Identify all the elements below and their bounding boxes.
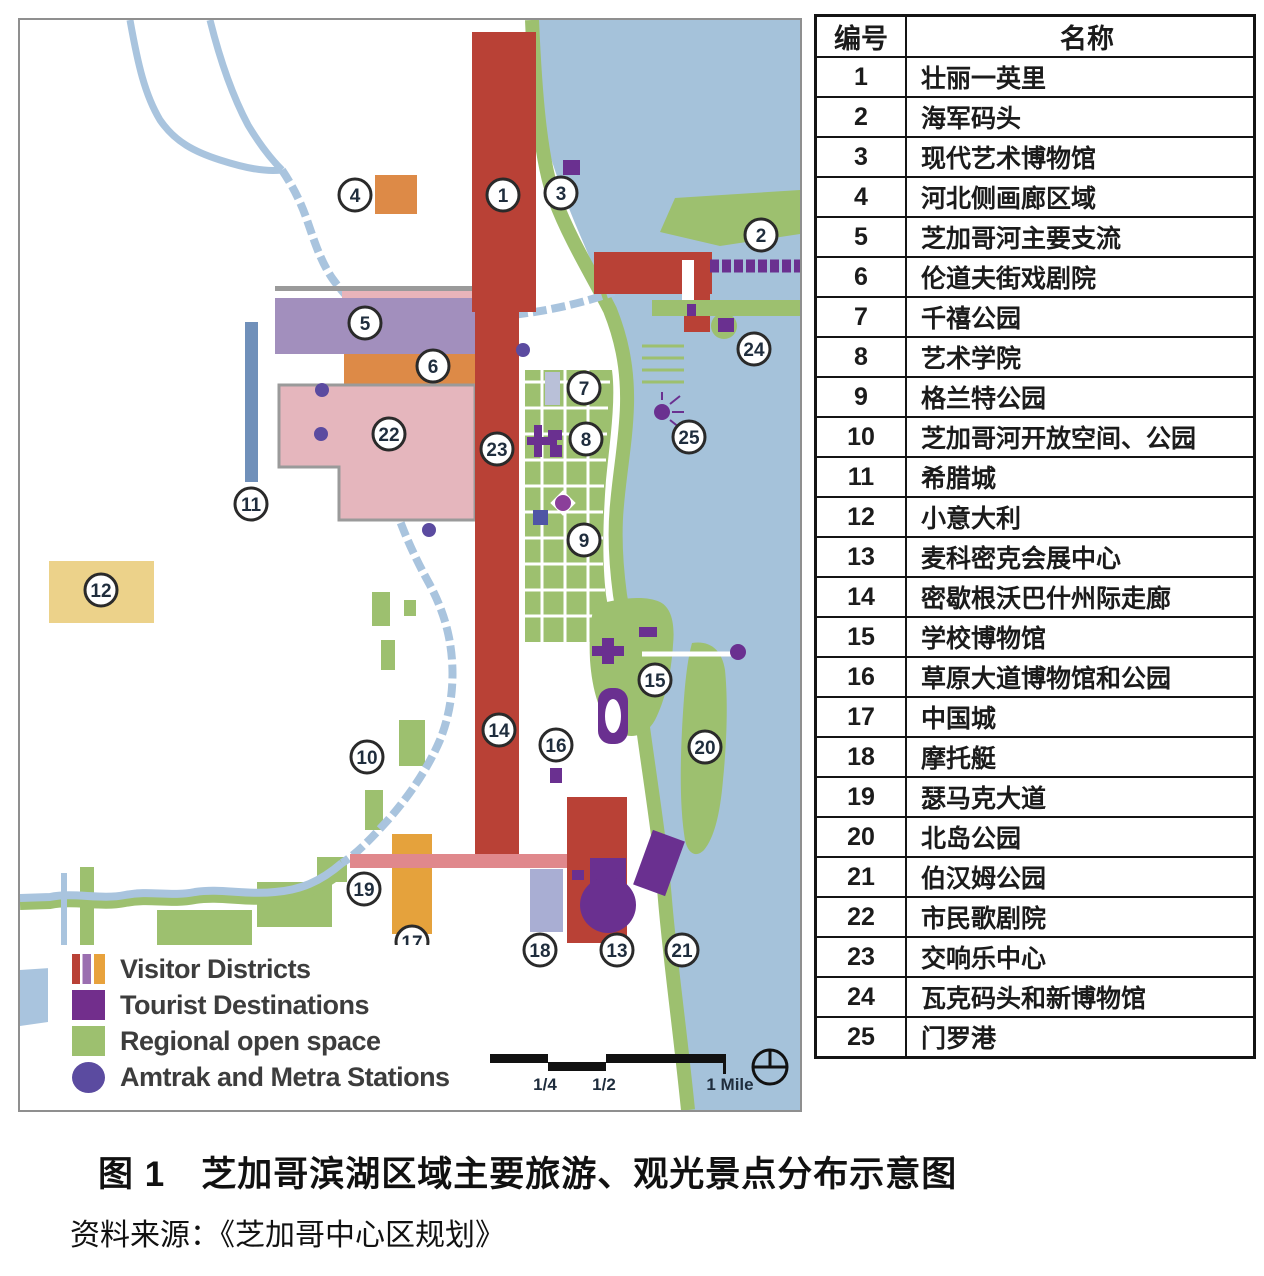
row-number-cell: 21 [816,857,907,897]
map-marker-2: 2 [745,219,777,251]
table-row: 2海军码头 [816,97,1255,137]
svg-text:11: 11 [241,495,262,516]
district-6-orange [344,354,475,385]
header-number: 编号 [816,16,907,58]
table-row: 13麦科密克会展中心 [816,537,1255,577]
pritzker-lavender [545,372,560,405]
table-row: 17中国城 [816,697,1255,737]
row-number-cell: 19 [816,777,907,817]
mca-square [563,160,580,175]
map-marker-25: 25 [673,421,705,453]
row-name-cell: 伦道夫街戏剧院 [906,257,1255,297]
map-marker-20: 20 [689,731,721,763]
table-row: 8艺术学院 [816,337,1255,377]
legend-row: Visitor Districts [72,951,480,987]
svg-text:9: 9 [579,531,590,552]
legend-row: Amtrak and Metra Stations [72,1059,480,1095]
table-header-row: 编号 名称 [816,16,1255,58]
table-row: 20北岛公园 [816,817,1255,857]
row-number-cell: 25 [816,1017,907,1058]
row-number-cell: 8 [816,337,907,377]
district-5-pink-strip [342,291,479,298]
svg-text:21: 21 [671,941,693,962]
table-row: 14密歇根沃巴什州际走廊 [816,577,1255,617]
svg-text:23: 23 [486,440,507,461]
table-row: 6伦道夫街戏剧院 [816,257,1255,297]
row-name-cell: 伯汉姆公园 [906,857,1255,897]
table-row: 23交响乐中心 [816,937,1255,977]
svg-text:20: 20 [694,738,715,759]
row-number-cell: 17 [816,697,907,737]
map-marker-16: 16 [540,729,572,761]
legend-swatch-purple [72,990,105,1020]
map-marker-19: 19 [348,873,380,905]
map-marker-6: 6 [417,350,449,382]
map-marker-1: 1 [487,179,519,211]
row-number-cell: 13 [816,537,907,577]
svg-text:19: 19 [353,880,374,901]
map-marker-14: 14 [483,714,515,746]
row-name-cell: 交响乐中心 [906,937,1255,977]
scanned-figure-page: 1234567891011121314151617181920212223242… [0,0,1264,1276]
row-name-cell: 中国城 [906,697,1255,737]
station-square [533,510,548,525]
map-marker-3: 3 [545,177,577,209]
row-number-cell: 18 [816,737,907,777]
row-number-cell: 23 [816,937,907,977]
canal-bar [61,873,67,947]
map-marker-8: 8 [570,423,602,455]
row-name-cell: 河北侧画廊区域 [906,177,1255,217]
table-row: 19瑟马克大道 [816,777,1255,817]
table-row: 7千禧公园 [816,297,1255,337]
svg-text:1: 1 [498,186,509,207]
greektown-bar [245,322,258,482]
svg-text:14: 14 [488,721,510,742]
svg-text:6: 6 [428,357,439,378]
michigan-wabash-red [475,310,519,854]
row-number-cell: 22 [816,897,907,937]
row-number-cell: 3 [816,137,907,177]
legend-label: Regional open space [120,1026,381,1057]
wacker-museum [718,318,734,332]
row-number-cell: 4 [816,177,907,217]
row-name-cell: 北岛公园 [906,817,1255,857]
figure-source: 资料来源：《芝加哥中心区规划》 [70,1210,505,1254]
row-number-cell: 7 [816,297,907,337]
planetarium-dot [730,644,746,660]
table-body: 1壮丽一英里2海军码头3现代艺术博物馆4河北侧画廊区域5芝加哥河主要支流6伦道夫… [816,57,1255,1058]
table-row: 15学校博物馆 [816,617,1255,657]
magnificent-mile-red [472,32,536,312]
svg-text:16: 16 [545,736,566,757]
prairie-ave-square [550,768,562,783]
svg-text:25: 25 [678,428,700,449]
cermak-road-salmon [350,854,569,868]
district-5-border [275,286,479,291]
row-number-cell: 15 [816,617,907,657]
map-marker-21: 21 [666,934,698,966]
map-marker-9: 9 [568,524,600,556]
row-number-cell: 5 [816,217,907,257]
map-marker-11: 11 [235,488,267,520]
table-row: 18摩托艇 [816,737,1255,777]
map-marker-15: 15 [639,664,671,696]
row-name-cell: 格兰特公园 [906,377,1255,417]
row-number-cell: 12 [816,497,907,537]
row-name-cell: 小意大利 [906,497,1255,537]
table-row: 9格兰特公园 [816,377,1255,417]
map-marker-5: 5 [349,307,381,339]
table-row: 22市民歌剧院 [816,897,1255,937]
table-row: 3现代艺术博物馆 [816,137,1255,177]
gallery-district-orange [375,175,417,214]
map-marker-4: 4 [339,179,371,211]
legend-swatch-stripes [72,954,105,984]
row-number-cell: 9 [816,377,907,417]
table-row: 11希腊城 [816,457,1255,497]
map-marker-7: 7 [568,372,600,404]
map-marker-13: 13 [601,934,633,966]
scale-quarter-label: 1/4 [533,1075,557,1094]
map-legend: Visitor DistrictsTourist DestinationsReg… [48,945,480,1105]
svg-text:8: 8 [581,430,592,451]
map-marker-22: 22 [373,418,405,450]
legend-label: Amtrak and Metra Stations [120,1062,450,1093]
row-name-cell: 门罗港 [906,1017,1255,1058]
row-name-cell: 芝加哥河开放空间、公园 [906,417,1255,457]
svg-text:2: 2 [756,226,767,247]
row-name-cell: 海军码头 [906,97,1255,137]
svg-text:18: 18 [529,941,550,962]
row-name-cell: 市民歌剧院 [906,897,1255,937]
svg-text:4: 4 [350,186,361,207]
legend-row: Tourist Destinations [72,987,480,1023]
scale-mile-label: 1 Mile [706,1075,753,1094]
row-number-cell: 20 [816,817,907,857]
attractions-table: 编号 名称 1壮丽一英里2海军码头3现代艺术博物馆4河北侧画廊区域5芝加哥河主要… [814,14,1256,1059]
row-name-cell: 学校博物馆 [906,617,1255,657]
svg-text:7: 7 [579,379,590,400]
svg-text:3: 3 [556,184,567,205]
row-name-cell: 瑟马克大道 [906,777,1255,817]
table-row: 21伯汉姆公园 [816,857,1255,897]
row-name-cell: 芝加哥河主要支流 [906,217,1255,257]
figure-caption: 图 1 芝加哥滨湖区域主要旅游、观光景点分布示意图 [98,1146,957,1197]
row-name-cell: 艺术学院 [906,337,1255,377]
table-row: 12小意大利 [816,497,1255,537]
scale-half-label: 1/2 [592,1075,616,1094]
table-row: 1壮丽一英里 [816,57,1255,97]
svg-text:5: 5 [360,314,371,335]
motorboat-lavender [530,869,563,932]
soldier-field [598,688,628,744]
map-marker-23: 23 [481,433,513,465]
chicago-lakefront-map: 1234567891011121314151617181920212223242… [18,18,802,1112]
row-name-cell: 现代艺术博物馆 [906,137,1255,177]
map-marker-10: 10 [351,741,383,773]
svg-text:22: 22 [378,425,399,446]
row-name-cell: 希腊城 [906,457,1255,497]
legend-swatch-green [72,1026,105,1056]
header-name: 名称 [906,16,1255,58]
wacker-small-square [687,304,696,316]
chinatown-orange [392,834,432,934]
row-number-cell: 1 [816,57,907,97]
svg-text:10: 10 [356,748,377,769]
legend-label: Tourist Destinations [120,990,369,1021]
map-marker-24: 24 [738,333,770,365]
row-name-cell: 千禧公园 [906,297,1255,337]
svg-text:15: 15 [644,671,666,692]
district-22-pink [279,385,475,520]
row-name-cell: 草原大道博物馆和公园 [906,657,1255,697]
legend-row: Regional open space [72,1023,480,1059]
svg-text:12: 12 [90,581,111,602]
map-marker-18: 18 [524,934,556,966]
row-number-cell: 2 [816,97,907,137]
row-number-cell: 24 [816,977,907,1017]
row-number-cell: 16 [816,657,907,697]
legend-swatch-dot [72,1062,105,1093]
table-row: 5芝加哥河主要支流 [816,217,1255,257]
row-name-cell: 壮丽一英里 [906,57,1255,97]
svg-text:24: 24 [743,340,765,361]
row-number-cell: 6 [816,257,907,297]
svg-text:13: 13 [606,941,627,962]
table-row: 4河北侧画廊区域 [816,177,1255,217]
row-name-cell: 瓦克码头和新博物馆 [906,977,1255,1017]
row-number-cell: 11 [816,457,907,497]
table-row: 24瓦克码头和新博物馆 [816,977,1255,1017]
row-name-cell: 密歇根沃巴什州际走廊 [906,577,1255,617]
row-number-cell: 10 [816,417,907,457]
table-row: 25门罗港 [816,1017,1255,1058]
row-name-cell: 摩托艇 [906,737,1255,777]
table-row: 10芝加哥河开放空间、公园 [816,417,1255,457]
table-row: 16草原大道博物馆和公园 [816,657,1255,697]
row-number-cell: 14 [816,577,907,617]
map-marker-12: 12 [85,574,117,606]
legend-label: Visitor Districts [120,954,311,985]
row-name-cell: 麦科密克会展中心 [906,537,1255,577]
